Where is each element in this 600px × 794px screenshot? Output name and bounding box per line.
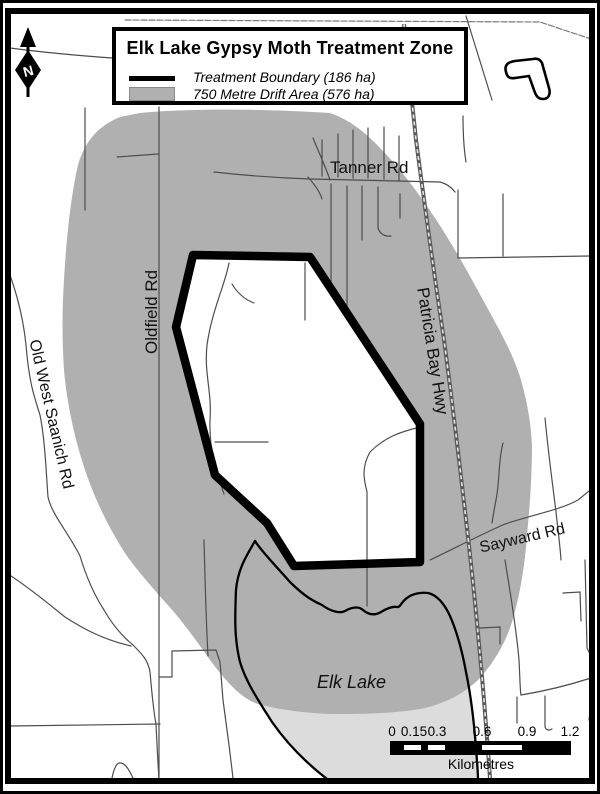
treatment-boundary-label: Treatment Boundary (186 ha) bbox=[193, 69, 376, 85]
north-arrow: N bbox=[15, 27, 41, 97]
scale-tick-0: 0 bbox=[388, 724, 396, 739]
treatment-boundary-swatch bbox=[129, 76, 175, 81]
drift-area-label: 750 Metre Drift Area (576 ha) bbox=[193, 86, 375, 102]
scale-tick-03: 0.3 bbox=[428, 724, 447, 739]
title-legend-box: Elk Lake Gypsy Moth Treatment Zone Treat… bbox=[112, 27, 468, 105]
scale-tick-06: 0.6 bbox=[473, 724, 492, 739]
drift-area-swatch bbox=[129, 87, 175, 101]
scale-tick-09: 0.9 bbox=[518, 724, 537, 739]
label-tanner-rd: Tanner Rd bbox=[330, 158, 408, 178]
legend-row-treatment-boundary: Treatment Boundary (186 ha) bbox=[129, 69, 376, 85]
label-elk-lake: Elk Lake bbox=[317, 672, 386, 693]
map-title: Elk Lake Gypsy Moth Treatment Zone bbox=[116, 38, 464, 59]
small-boundary-feature bbox=[505, 59, 549, 99]
scale-tick-015: 0.15 bbox=[401, 724, 427, 739]
map-page: N Elk Lake Gypsy Moth Treatment Zone Tre… bbox=[0, 0, 600, 794]
scale-tick-12: 1.2 bbox=[561, 724, 580, 739]
label-oldfield-rd: Oldfield Rd bbox=[142, 270, 162, 354]
map-canvas: N bbox=[0, 0, 600, 794]
scale-unit-label: Kilometres bbox=[448, 756, 514, 772]
legend-row-drift-area: 750 Metre Drift Area (576 ha) bbox=[129, 86, 375, 102]
scale-bar bbox=[390, 741, 571, 755]
